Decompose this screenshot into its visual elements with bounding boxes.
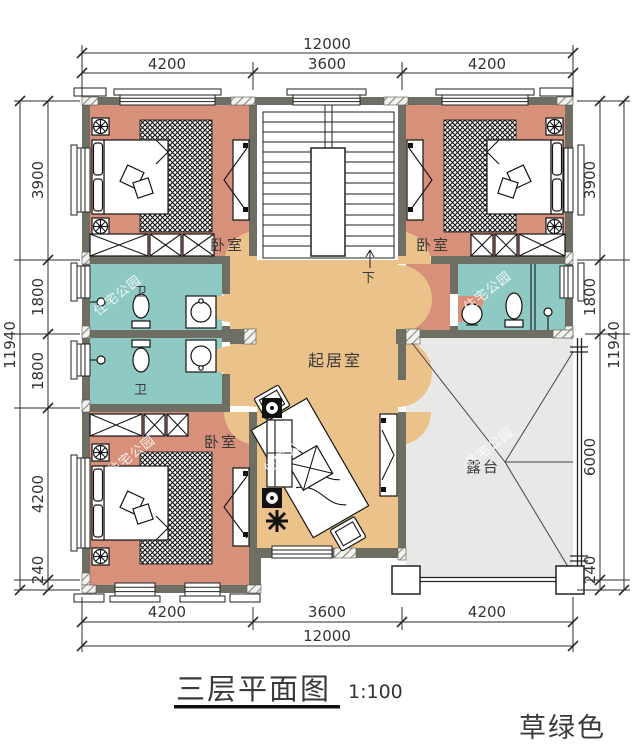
dim-right-total: 11940 [605, 321, 623, 369]
stair-treads-right [345, 152, 394, 246]
dim-left-seg-2: 1800 [29, 278, 47, 316]
wardrobe [90, 234, 214, 256]
dim-top-seg-2: 3600 [308, 55, 346, 73]
bath-2-label: 卫 [134, 382, 149, 397]
dim-top-total: 12000 [303, 35, 351, 53]
toilet-tank [132, 340, 150, 347]
dim-left-seg-1: 3900 [29, 161, 47, 199]
bed [92, 140, 168, 214]
dim-bottom-total: 12000 [303, 627, 351, 645]
floor-plan-drawing: 卧室 卧室 卧室 卫 卫 起居室 露台 下 住宅公园 住宅公园 住宅公园 住宅公… [0, 0, 640, 756]
stair-down-label: 下 [362, 270, 377, 285]
title-block: 三层平面图 1:100 草绿色 [174, 674, 606, 743]
wardrobe [90, 414, 188, 436]
dim-left-total: 11940 [1, 321, 19, 369]
page-title: 三层平面图 [176, 674, 331, 706]
bedroom-label-bottom-left: 卧室 [204, 434, 238, 451]
washbasin [191, 346, 211, 366]
toilet-bowl [506, 293, 522, 319]
bedroom-label-top-right: 卧室 [416, 237, 450, 254]
dim-bottom-seg-1: 4200 [148, 603, 186, 621]
bed [487, 140, 563, 214]
floor-plan-page: 卧室 卧室 卧室 卫 卫 起居室 露台 下 住宅公园 住宅公园 住宅公园 住宅公… [0, 0, 640, 756]
dim-right-seg-2: 1800 [581, 278, 599, 316]
bedroom-label-top-left: 卧室 [210, 237, 244, 254]
dim-left-seg-3: 1800 [29, 352, 47, 390]
color-note: 草绿色 [519, 713, 606, 743]
dim-right-seg-1: 3900 [581, 161, 599, 199]
dim-bottom-seg-2: 3600 [308, 603, 346, 621]
tv-cabinet [380, 414, 397, 496]
toilet-bowl [133, 348, 149, 372]
plant [266, 510, 288, 532]
stair-well [311, 148, 345, 256]
title-underline [174, 705, 340, 709]
dim-left-seg-5: 240 [29, 556, 47, 585]
washbasin [191, 302, 211, 322]
stair-treads-left [263, 152, 311, 246]
scale-label: 1:100 [348, 681, 403, 703]
toilet-tank [132, 321, 150, 328]
dim-right-seg-3: 6000 [581, 438, 599, 476]
living-room-label: 起居室 [308, 352, 362, 370]
dim-top-seg-3: 4200 [468, 55, 506, 73]
dim-right-seg-4: 240 [581, 556, 599, 585]
toilet-tank [505, 320, 523, 327]
dim-left-seg-4: 4200 [29, 475, 47, 513]
staircase [263, 105, 394, 268]
dim-bottom-seg-3: 4200 [468, 603, 506, 621]
bed [92, 466, 168, 540]
dim-top-seg-1: 4200 [148, 55, 186, 73]
terrace-post [392, 566, 420, 594]
